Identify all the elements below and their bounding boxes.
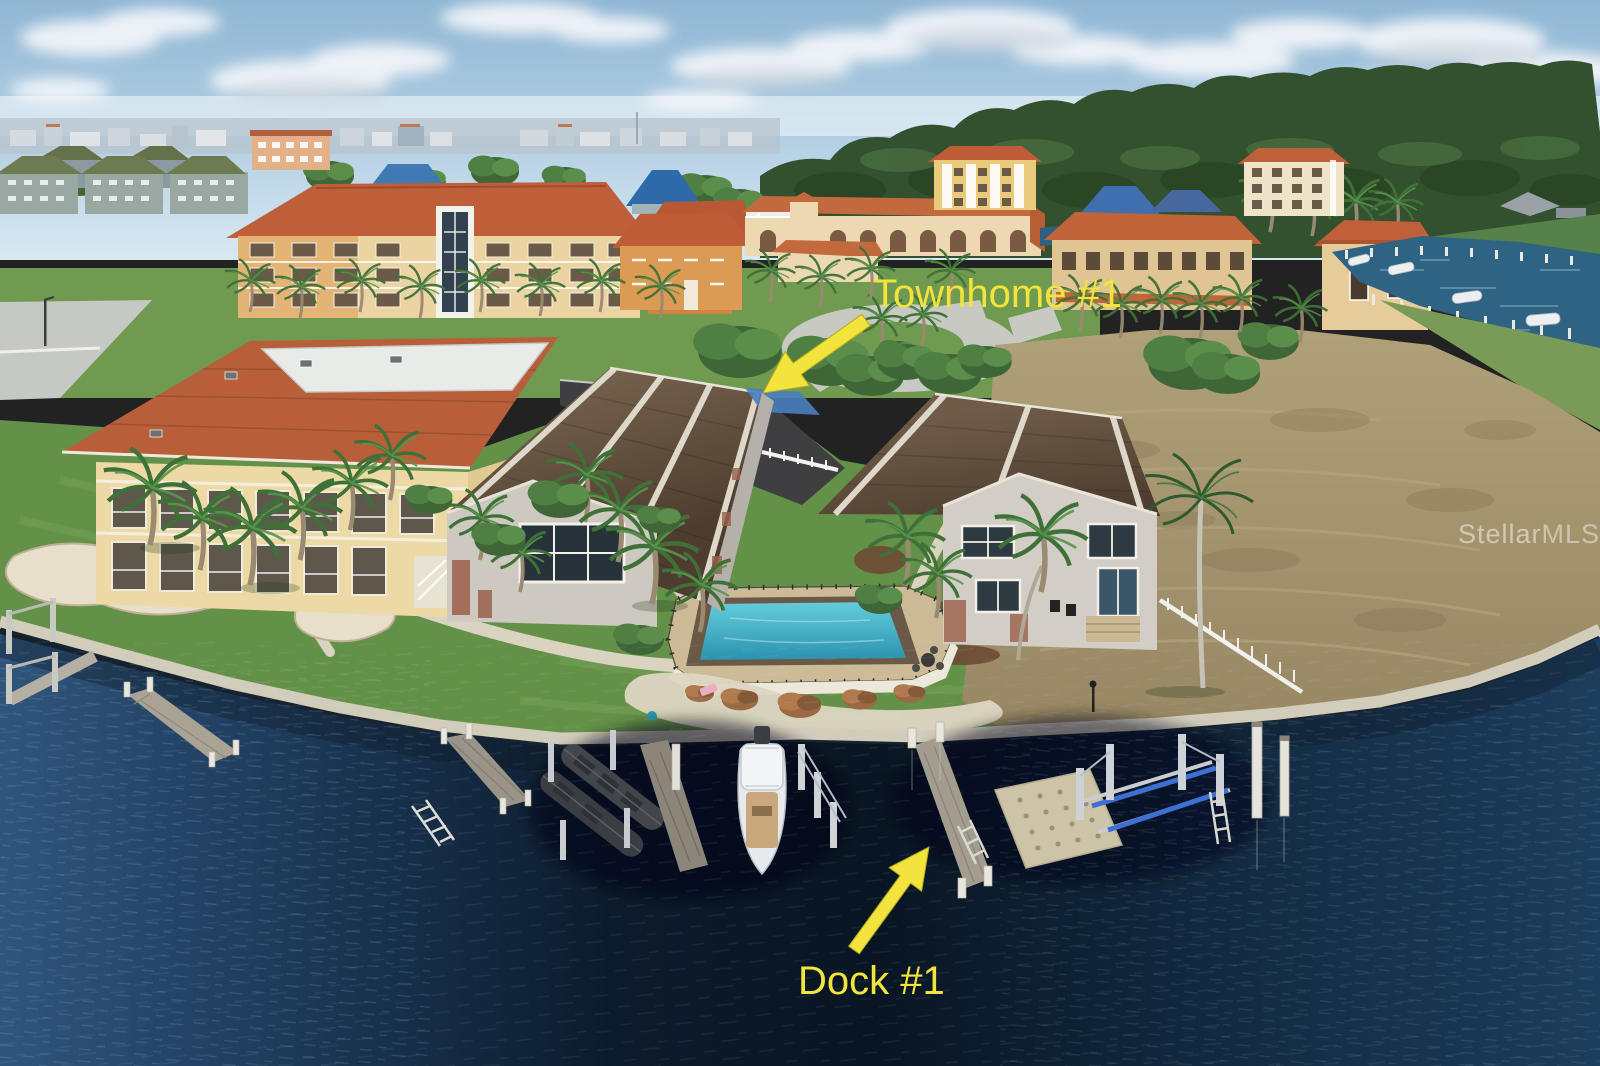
townhome2-steps bbox=[1086, 616, 1140, 642]
left-condo-flat-roof bbox=[262, 343, 548, 392]
watermark-prefix: Stellar bbox=[1458, 519, 1542, 549]
aerial-photo: Townhome #1 Dock #1 StellarMLS bbox=[0, 0, 1600, 1066]
stellar-mls-watermark: StellarMLS bbox=[1458, 519, 1600, 549]
watermark-suffix: MLS bbox=[1541, 519, 1600, 549]
horizon-city bbox=[0, 112, 780, 154]
boat-t-top bbox=[741, 744, 783, 790]
aerial-scene: Townhome #1 Dock #1 StellarMLS bbox=[0, 0, 1600, 1066]
salmon-building bbox=[250, 130, 332, 170]
dock-annotation-label: Dock #1 bbox=[798, 959, 945, 1003]
boat-outboard bbox=[754, 726, 770, 744]
olive-condos bbox=[0, 146, 248, 214]
yellow-condo bbox=[928, 146, 1042, 210]
boat-cockpit bbox=[746, 792, 778, 848]
cream-condo bbox=[1238, 148, 1350, 216]
orange-condo bbox=[612, 212, 752, 310]
townhome-annotation-label: Townhome #1 bbox=[873, 272, 1122, 316]
street-lamp bbox=[44, 300, 47, 346]
